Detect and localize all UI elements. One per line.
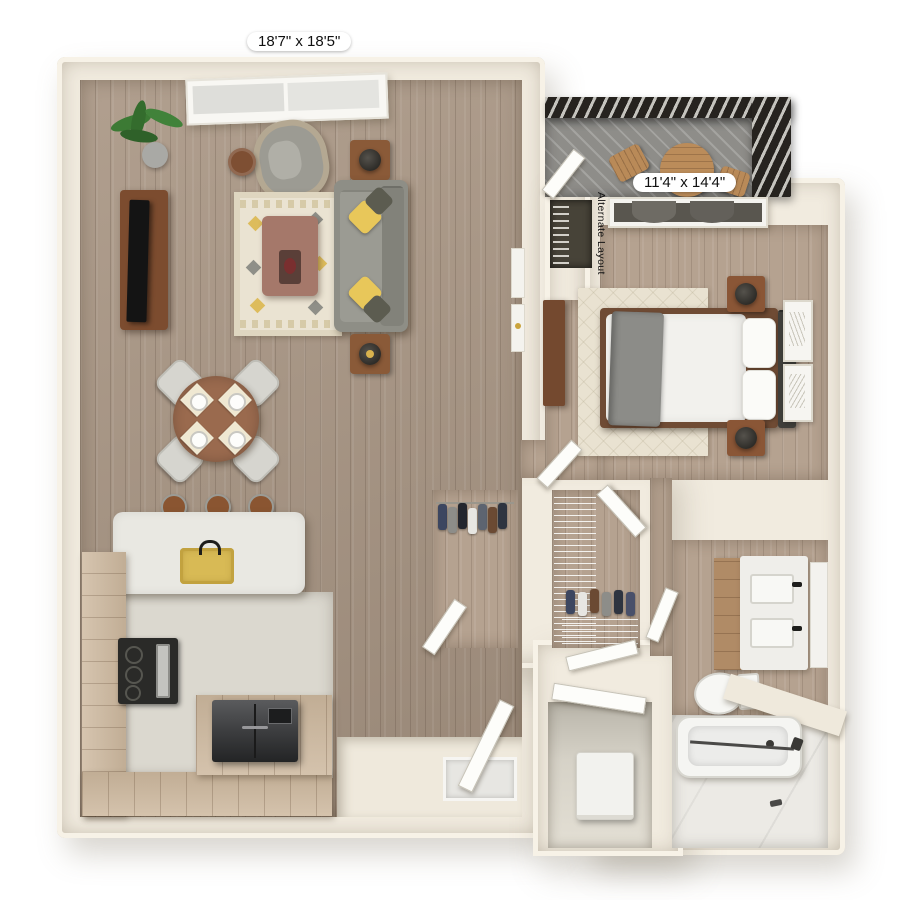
curtain <box>690 201 734 223</box>
hanging-clothes <box>626 592 635 616</box>
table-lamp <box>359 149 381 171</box>
fridge-handle <box>242 726 268 729</box>
fridge-handle-line <box>254 704 256 758</box>
rug-motif <box>308 300 324 316</box>
wall-art-small <box>511 304 525 352</box>
washer-dryer <box>576 752 634 820</box>
curtain <box>632 201 676 223</box>
living-room-dimensions-text: 18'7" x 18'5" <box>258 33 340 50</box>
hanging-clothes <box>488 507 497 533</box>
linen-shelves <box>553 204 569 264</box>
vanity-cabinet <box>714 558 742 670</box>
living-room-window <box>185 72 388 125</box>
nightstand <box>727 276 765 312</box>
plate <box>190 393 208 411</box>
hanging-clothes <box>614 590 623 614</box>
wire-shelf-bottom <box>562 618 638 644</box>
floor-plan: 18'7" x 18'5" 11'4" x 14'4" Alternate La… <box>0 0 900 900</box>
range <box>118 638 178 704</box>
hanging-clothes <box>578 592 587 616</box>
window-pane <box>287 80 379 111</box>
vanity-sink <box>750 574 794 604</box>
sink-faucet <box>199 540 221 555</box>
kitchen-island <box>113 512 305 594</box>
hanging-clothes <box>602 592 611 616</box>
fridge-dispenser <box>268 708 292 724</box>
dresser <box>543 300 565 406</box>
sofa <box>334 180 408 332</box>
balcony-railing-right <box>752 97 791 197</box>
bedside-lamp <box>735 283 757 305</box>
armchair-cushion <box>266 139 304 182</box>
rug-motif <box>248 216 264 232</box>
alternate-layout-text: Alternate Layout <box>595 192 607 275</box>
art-sketch <box>789 374 805 408</box>
burner <box>125 646 143 664</box>
alternate-layout-label: Alternate Layout <box>595 192 607 275</box>
potted-plant <box>108 98 180 174</box>
coffee-table <box>262 216 318 296</box>
medicine-cabinet <box>810 562 828 668</box>
vanity-counter <box>740 556 808 670</box>
hanging-clothes <box>478 504 487 530</box>
end-table-top <box>350 140 390 180</box>
window-pane <box>192 83 284 114</box>
lamp-gold-accent <box>366 350 374 358</box>
end-table-bottom <box>350 334 390 374</box>
bedside-lamp <box>735 427 757 449</box>
rug-border-pattern <box>240 320 336 328</box>
faucet <box>792 582 802 587</box>
coffee-table-tray <box>279 250 301 284</box>
hanging-clothes <box>498 503 507 529</box>
plant-leaf <box>119 127 158 144</box>
linen-closet <box>550 200 592 268</box>
side-table <box>228 148 256 176</box>
pillow <box>742 370 776 420</box>
wall-art <box>783 300 813 362</box>
throw-blanket <box>608 311 664 427</box>
kitchen-counter-bottom <box>82 772 332 816</box>
tv <box>126 200 149 322</box>
plate <box>190 431 208 449</box>
hanging-clothes <box>590 589 599 613</box>
refrigerator <box>212 700 298 762</box>
burner <box>125 685 141 701</box>
bed <box>600 308 786 428</box>
bedroom-window <box>608 197 768 228</box>
rug-motif <box>250 298 266 314</box>
plant-pot <box>142 142 168 168</box>
hanging-clothes <box>566 590 575 614</box>
burner <box>125 666 143 684</box>
faucet <box>792 626 802 631</box>
oven-door <box>156 644 170 698</box>
hanging-clothes <box>438 504 447 530</box>
dining-table <box>173 376 259 462</box>
nightstand <box>727 420 765 456</box>
art-accent <box>515 323 521 329</box>
rug-motif <box>246 260 262 276</box>
pillow <box>742 318 776 368</box>
hanging-clothes <box>448 507 457 533</box>
plate <box>228 393 246 411</box>
plate <box>228 431 246 449</box>
wall-art <box>783 364 813 422</box>
wall-art-small <box>511 248 525 298</box>
art-sketch <box>789 312 805 346</box>
living-room-dimensions-label: 18'7" x 18'5" <box>247 32 351 51</box>
tray-decor <box>284 258 296 274</box>
bedroom-dimensions-label: 11'4" x 14'4" <box>633 173 736 192</box>
hanging-clothes <box>468 508 477 534</box>
bedroom-dimensions-text: 11'4" x 14'4" <box>644 174 725 191</box>
rug-border-pattern <box>240 200 336 208</box>
hanging-clothes <box>458 503 467 529</box>
vanity-sink <box>750 618 794 648</box>
